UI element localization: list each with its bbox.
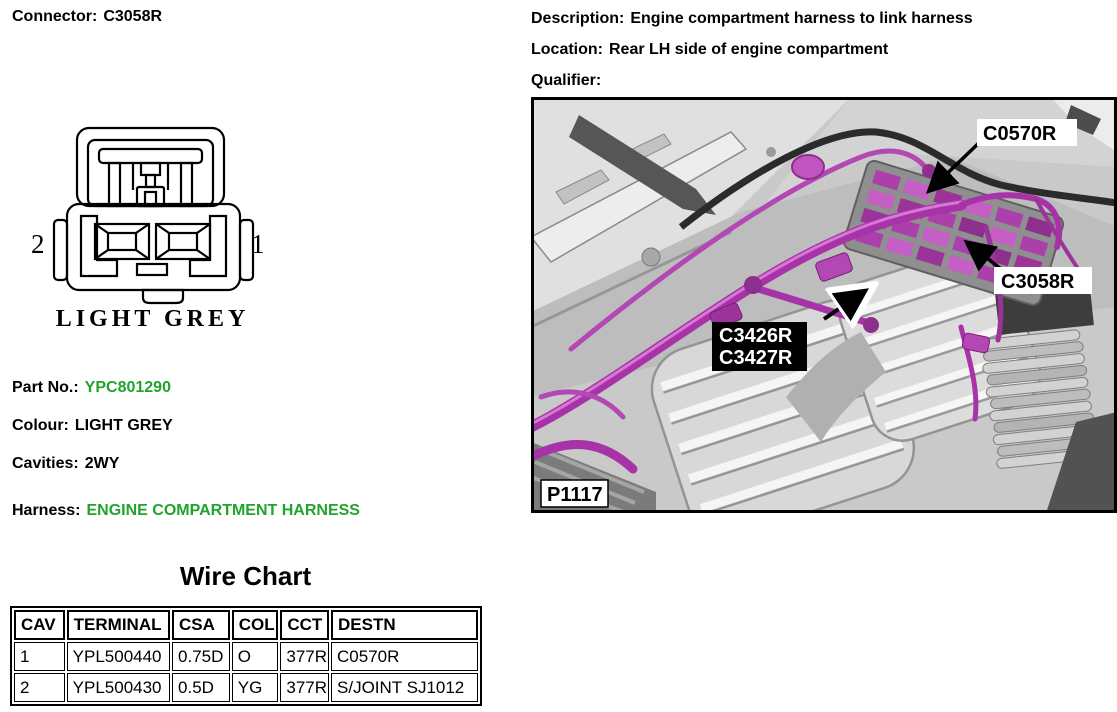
cavities-label: Cavities:: [12, 455, 79, 472]
wire-chart-col-csa: CSA: [172, 610, 230, 640]
wire-chart-col-cct: CCT: [280, 610, 329, 640]
cavities-line: Cavities:2WY: [12, 455, 119, 473]
cavity-2-inner: [108, 233, 136, 250]
latch-rail-right: [181, 163, 192, 206]
table-row: 2YPL5004300.5DYG377RS/JOINT SJ1012: [14, 673, 478, 702]
bottom-tab: [143, 290, 183, 303]
table-cell: 377R: [280, 673, 329, 702]
table-cell: YPL500440: [67, 642, 170, 671]
table-cell: 0.75D: [172, 642, 230, 671]
pin-number-1: 1: [251, 229, 265, 259]
table-cell: 0.5D: [172, 673, 230, 702]
engine-compartment-photo: C0570R C3058R C3426R C3427R P1117: [531, 97, 1117, 513]
table-row: 1YPL5004400.75DO377RC0570R: [14, 642, 478, 671]
table-cell: 2: [14, 673, 65, 702]
connector-title-value: C3058R: [103, 8, 162, 25]
location-value: Rear LH side of engine compartment: [609, 41, 888, 58]
label-c0570r: C0570R: [983, 123, 1057, 145]
latch-bar: [99, 149, 202, 163]
table-cell: C0570R: [331, 642, 478, 671]
latch-tab-top: [141, 163, 160, 175]
colour-line: Colour:LIGHT GREY: [12, 417, 173, 435]
table-cell: S/JOINT SJ1012: [331, 673, 478, 702]
cavity-1-bevels: [156, 224, 210, 259]
part-no-label: Part No.:: [12, 379, 79, 396]
label-c3426r: C3426R: [719, 325, 793, 347]
label-c3058r: C3058R: [1001, 271, 1075, 293]
body-ear-left: [54, 220, 67, 280]
part-no-value: YPC801290: [85, 379, 171, 396]
table-cell: 1: [14, 642, 65, 671]
table-cell: YPL500430: [67, 673, 170, 702]
connector-title-label: Connector:: [12, 8, 97, 25]
index-slot: [137, 264, 167, 275]
cavity-2-bevels: [95, 224, 149, 259]
table-cell: YG: [232, 673, 279, 702]
latch-stem: [146, 175, 155, 187]
header-info: Description:Engine compartment harness t…: [531, 8, 1111, 101]
connector-face-diagram: 2 1: [25, 112, 265, 306]
description-label: Description:: [531, 10, 624, 27]
description-value: Engine compartment harness to link harne…: [630, 10, 972, 27]
label-p1117: P1117: [547, 484, 603, 506]
connector-title: Connector:C3058R: [12, 8, 162, 26]
wire-chart-title: Wire Chart: [10, 561, 481, 592]
cavity-1-inner: [169, 233, 197, 250]
colour-label: Colour:: [12, 417, 69, 434]
wire-chart-col-destn: DESTN: [331, 610, 478, 640]
qualifier-label: Qualifier:: [531, 72, 601, 89]
connector-colour-caption: LIGHT GREY: [50, 306, 255, 333]
harness-label: Harness:: [12, 502, 80, 519]
description-line: Description:Engine compartment harness t…: [531, 8, 1111, 39]
location-line: Location:Rear LH side of engine compartm…: [531, 39, 1111, 70]
wire-chart-col-cav: CAV: [14, 610, 65, 640]
part-no-line: Part No.:YPC801290: [12, 379, 171, 397]
harness-value: ENGINE COMPARTMENT HARNESS: [86, 502, 360, 519]
label-c3427r: C3427R: [719, 347, 793, 369]
colour-value: LIGHT GREY: [75, 417, 173, 434]
latch-rail-left: [109, 163, 120, 206]
pin-number-2: 2: [31, 229, 45, 259]
wire-chart-col-terminal: TERMINAL: [67, 610, 170, 640]
wire-chart-col-col: COL: [232, 610, 279, 640]
wire-chart-header-row: CAVTERMINALCSACOLCCTDESTN: [14, 610, 478, 640]
table-cell: 377R: [280, 642, 329, 671]
harness-line: Harness:ENGINE COMPARTMENT HARNESS: [12, 502, 360, 520]
cavities-value: 2WY: [85, 455, 120, 472]
wire-chart-table: CAVTERMINALCSACOLCCTDESTN 1YPL5004400.75…: [10, 606, 482, 706]
table-cell: O: [232, 642, 279, 671]
location-label: Location:: [531, 41, 603, 58]
